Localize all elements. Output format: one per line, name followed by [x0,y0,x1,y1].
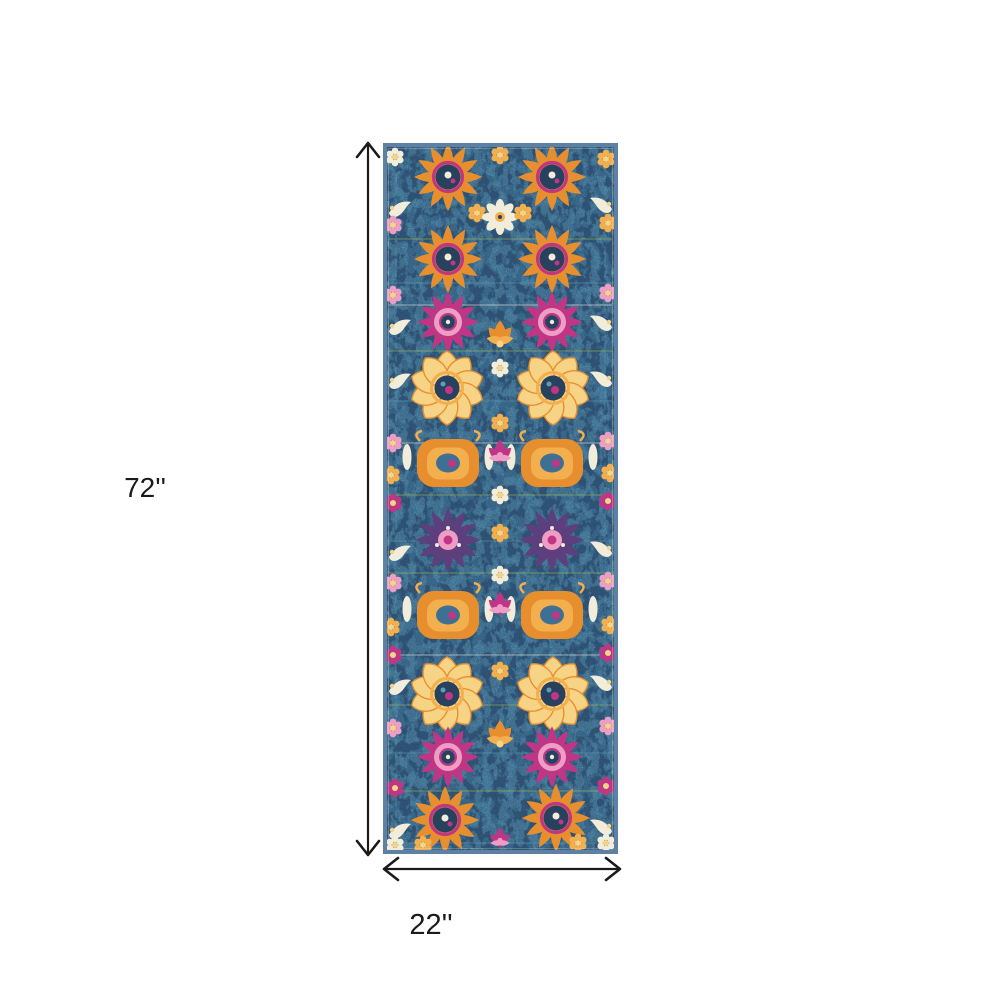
rug-image [383,143,618,854]
width-dimension-label: 22'' [386,908,476,942]
height-dimension-label: 72'' [100,471,190,505]
product-dimension-figure: 72'' 22'' [0,0,1000,1000]
width-dimension-arrow [380,852,624,886]
height-dimension-arrow [351,139,385,859]
